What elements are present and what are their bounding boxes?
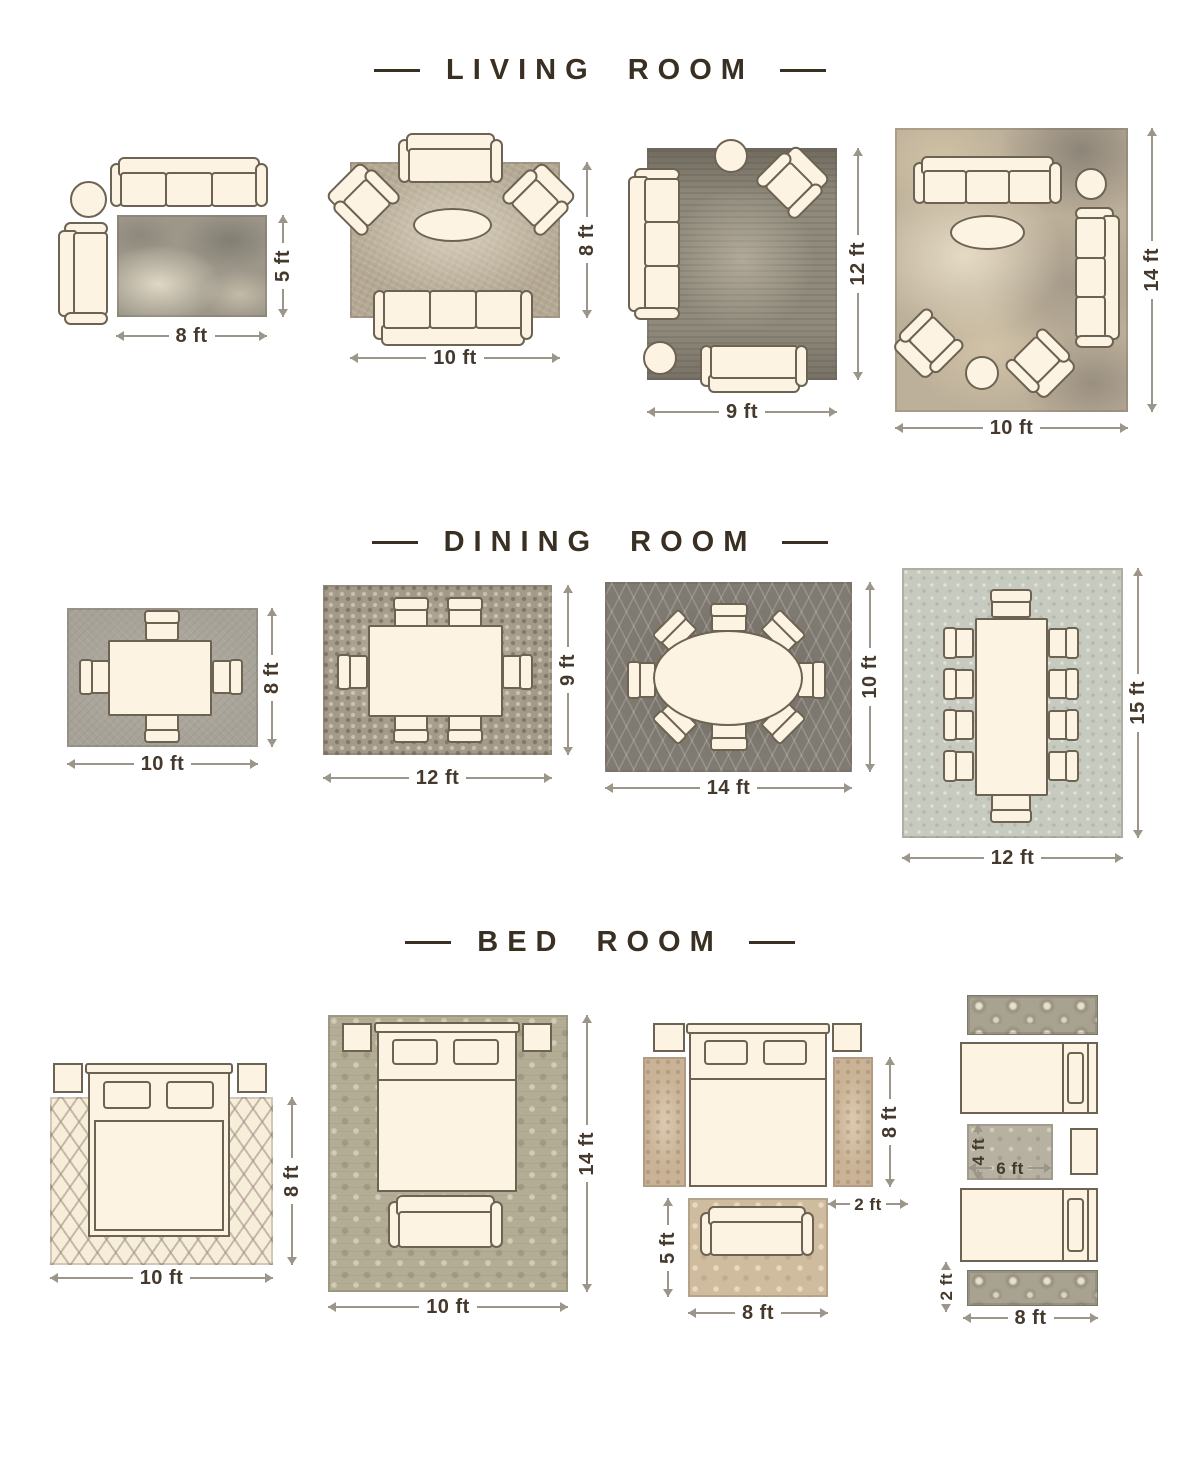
- arm-part: [64, 312, 108, 325]
- pw-part: [704, 1040, 748, 1065]
- ln-part: [857, 293, 859, 380]
- ln-part: [1040, 427, 1128, 429]
- ln-part: [586, 162, 588, 217]
- dining-chair-left-3: [946, 710, 974, 740]
- ln-part: [667, 1271, 669, 1298]
- ln-part: [1137, 732, 1139, 838]
- ln-part: [191, 763, 258, 765]
- div-part: [1062, 1042, 1064, 1114]
- title-dash-right: [749, 941, 795, 944]
- ln-part: [50, 1277, 133, 1279]
- height-dimension: 8 ft: [278, 1097, 306, 1265]
- pw-part: [392, 1039, 438, 1065]
- txt-part: 10 ft: [134, 754, 192, 774]
- ln-part: [963, 1317, 1008, 1319]
- blk-part: [94, 1120, 224, 1231]
- ln-part: [291, 1204, 293, 1265]
- ln-part: [567, 585, 569, 647]
- ln-part: [1151, 299, 1153, 412]
- dining-chair-top-2: [448, 600, 482, 628]
- nightstand-right: [832, 1023, 862, 1052]
- arm-part: [520, 290, 533, 340]
- txt-part: 10 ft: [860, 648, 880, 706]
- width-dimension: 12 ft: [902, 846, 1123, 870]
- seats-part: [120, 172, 258, 207]
- txt-part: 14 ft: [700, 778, 758, 798]
- width-dimension: 10 ft: [350, 346, 560, 370]
- section-title-dining-room: DINING ROOM: [0, 528, 1200, 557]
- width-dimension: 10 ft: [895, 416, 1128, 440]
- seats-part: [408, 148, 493, 183]
- seats-part: [1075, 217, 1107, 338]
- loveseat-bottom: [700, 345, 808, 393]
- txt-part: 8 ft: [735, 1303, 781, 1323]
- sofa-3seat-right: [1075, 207, 1120, 348]
- txt-part: 10 ft: [419, 1297, 477, 1317]
- width-dimension: 10 ft: [67, 752, 258, 776]
- dining-chair-right: [212, 660, 240, 694]
- arm-part: [255, 163, 268, 207]
- txt-part: 5 ft: [658, 1225, 678, 1271]
- width-dimension: 10 ft: [328, 1295, 568, 1319]
- seats-part: [73, 232, 108, 315]
- height-dimension: 14 ft: [1138, 128, 1166, 412]
- loveseat-vertical: [58, 222, 108, 325]
- round-side-table-bottom: [643, 341, 677, 375]
- height-dimension: 8 ft: [258, 608, 286, 747]
- txt-part: 15 ft: [1128, 674, 1148, 732]
- ln-part: [271, 608, 273, 655]
- oval-dining-table: [653, 630, 803, 726]
- pw-part: [103, 1081, 151, 1109]
- ln-part: [765, 411, 837, 413]
- round-side-table: [70, 181, 107, 218]
- txt-part: 12 ft: [409, 768, 467, 788]
- seats-part: [398, 1211, 493, 1248]
- ln-part: [1151, 128, 1153, 241]
- title-dash-left: [405, 941, 451, 944]
- dining-chair-top-1: [394, 600, 428, 628]
- width-dimension: 10 ft: [50, 1266, 273, 1290]
- txt-part: 14 ft: [1142, 241, 1162, 299]
- pw-part: [1067, 1052, 1084, 1104]
- runner-width-dimension: 2 ft: [932, 1262, 960, 1312]
- height-dimension: 10 ft: [856, 582, 884, 772]
- seats-part: [710, 1221, 804, 1256]
- hb-part: [85, 1063, 233, 1074]
- height-dimension: 14 ft: [573, 1015, 601, 1292]
- ln-part: [869, 582, 871, 648]
- seats-part: [644, 178, 680, 310]
- ln-part: [1137, 568, 1139, 674]
- height-dimension: 15 ft: [1124, 568, 1152, 838]
- nightstand-right: [522, 1023, 552, 1052]
- ln-part: [1054, 1317, 1099, 1319]
- dining-chair-left: [340, 655, 368, 689]
- round-side-table-top: [714, 139, 748, 173]
- txt-part: 2 ft: [938, 1269, 955, 1305]
- width-dimension: 12 ft: [323, 766, 552, 790]
- txt-part: 8 ft: [169, 326, 215, 346]
- ln-part: [328, 1306, 419, 1308]
- sofa-3seat-bottom: [373, 290, 533, 346]
- width-dimension: 14 ft: [605, 776, 852, 800]
- arm-part: [801, 1212, 814, 1256]
- oval-coffee-table: [950, 215, 1025, 250]
- ln-part: [886, 1203, 908, 1205]
- ln-part: [977, 1124, 979, 1134]
- div-part: [1062, 1188, 1064, 1262]
- ln-part: [828, 1203, 850, 1205]
- dining-chair-left-4: [946, 751, 974, 781]
- section-title-text: DINING ROOM: [444, 528, 757, 557]
- ln-part: [282, 289, 284, 317]
- queen-bed: [689, 1023, 827, 1187]
- sofa-3seat-vertical: [628, 168, 680, 320]
- dining-table: [108, 640, 212, 716]
- dining-chair-right-2: [1048, 669, 1076, 699]
- queen-bed: [88, 1063, 230, 1237]
- ln-part: [586, 1182, 588, 1292]
- ln-part: [282, 215, 284, 243]
- arm-part: [634, 307, 680, 320]
- ln-part: [350, 357, 426, 359]
- ln-part: [895, 427, 983, 429]
- dining-chair-top: [991, 592, 1031, 618]
- ln-part: [323, 777, 409, 779]
- ln-part: [647, 411, 719, 413]
- txt-part: 9 ft: [719, 402, 765, 422]
- between-rug-width-dimension: 6 ft: [968, 1156, 1052, 1180]
- title-dash-right: [782, 541, 828, 544]
- txt-part: 8 ft: [880, 1099, 900, 1145]
- twin-bed-top: [960, 1042, 1098, 1114]
- dining-chair-right-1: [1048, 628, 1076, 658]
- rug-8x5: [117, 215, 267, 317]
- loveseat: [700, 1206, 814, 1256]
- height-dimension: 9 ft: [554, 585, 582, 755]
- runner-width-dimension: 2 ft: [828, 1192, 908, 1216]
- nightstand-right: [237, 1063, 267, 1093]
- ln-part: [889, 1145, 891, 1187]
- ln-part: [902, 857, 984, 859]
- ln-part: [968, 1167, 992, 1169]
- ln-part: [586, 263, 588, 318]
- ln-part: [945, 1305, 947, 1312]
- section-title-bed-room: BED ROOM: [0, 928, 1200, 957]
- width-dimension: 8 ft: [116, 324, 267, 348]
- ln-part: [1028, 1167, 1052, 1169]
- section-title-text: LIVING ROOM: [446, 56, 754, 85]
- runner-bottom: [967, 1270, 1098, 1306]
- ln-part: [215, 335, 268, 337]
- dining-chair-right-3: [1048, 710, 1076, 740]
- arm-part: [1075, 335, 1114, 348]
- ln-part: [605, 787, 700, 789]
- ln-part: [667, 1198, 669, 1225]
- ln-part: [466, 777, 552, 779]
- txt-part: 2 ft: [850, 1196, 886, 1213]
- txt-part: 8 ft: [282, 1158, 302, 1204]
- sofa-3seat: [110, 157, 268, 207]
- twin-bed-bottom: [960, 1188, 1098, 1262]
- runner-length-dimension: 8 ft: [876, 1057, 904, 1187]
- fold-part: [689, 1078, 827, 1080]
- pw-part: [1067, 1198, 1084, 1251]
- txt-part: 12 ft: [848, 235, 868, 293]
- dining-table: [975, 618, 1048, 796]
- ln-part: [688, 1312, 735, 1314]
- height-dimension: 12 ft: [844, 148, 872, 380]
- txt-part: 9 ft: [558, 647, 578, 693]
- bench: [388, 1195, 503, 1248]
- dining-table: [368, 625, 503, 717]
- hb-part: [374, 1022, 520, 1033]
- nightstand-left: [653, 1023, 685, 1052]
- ln-part: [1041, 857, 1123, 859]
- runner-left: [643, 1057, 686, 1187]
- ln-part: [477, 1306, 568, 1308]
- ln-part: [889, 1057, 891, 1099]
- txt-part: 14 ft: [577, 1125, 597, 1183]
- arm-part: [1049, 162, 1062, 204]
- ln-part: [869, 706, 871, 772]
- height-dimension: 5 ft: [269, 215, 297, 317]
- pw-part: [453, 1039, 499, 1065]
- hbr-part: [1087, 1042, 1098, 1114]
- arm-part: [490, 139, 503, 183]
- txt-part: 12 ft: [984, 848, 1042, 868]
- seats-part: [923, 170, 1052, 204]
- foot-rug-width-dimension: 8 ft: [688, 1301, 828, 1325]
- foot-rug-height-dimension: 5 ft: [654, 1198, 682, 1297]
- txt-part: 10 ft: [983, 418, 1041, 438]
- title-dash-left: [372, 541, 418, 544]
- dining-chair-top: [145, 613, 179, 641]
- runner-top: [967, 995, 1098, 1035]
- section-title-living-room: LIVING ROOM: [0, 56, 1200, 85]
- fold-part: [377, 1079, 517, 1081]
- ln-part: [190, 1277, 273, 1279]
- dining-chair-bottom: [991, 794, 1031, 820]
- hb-part: [686, 1023, 830, 1034]
- ln-part: [757, 787, 852, 789]
- ln-part: [484, 357, 560, 359]
- round-side-table-top: [1075, 168, 1107, 200]
- ln-part: [857, 148, 859, 235]
- title-dash-left: [374, 69, 420, 72]
- txt-part: 6 ft: [992, 1160, 1028, 1177]
- title-dash-right: [780, 69, 826, 72]
- ln-part: [291, 1097, 293, 1158]
- nightstand-left: [342, 1023, 372, 1052]
- ln-part: [781, 1312, 828, 1314]
- txt-part: 8 ft: [1008, 1308, 1054, 1328]
- height-dimension: 8 ft: [573, 162, 601, 318]
- dining-chair-left: [82, 660, 110, 694]
- seats-part: [383, 290, 523, 329]
- dining-chair-left-1: [946, 628, 974, 658]
- dining-chair-right: [502, 655, 530, 689]
- ln-part: [67, 763, 134, 765]
- txt-part: 10 ft: [133, 1268, 191, 1288]
- txt-part: 5 ft: [273, 243, 293, 289]
- width-dimension: 9 ft: [647, 400, 837, 424]
- arm-part: [795, 345, 808, 387]
- seats-part: [710, 345, 798, 379]
- txt-part: 8 ft: [577, 217, 597, 263]
- dining-chair-left-2: [946, 669, 974, 699]
- nightstand: [1070, 1128, 1098, 1175]
- pw-part: [166, 1081, 214, 1109]
- loveseat-top: [398, 133, 503, 183]
- txt-part: 10 ft: [426, 348, 484, 368]
- ln-part: [271, 701, 273, 748]
- oval-coffee-table: [413, 208, 492, 242]
- nightstand-left: [53, 1063, 83, 1093]
- queen-bed: [377, 1022, 517, 1192]
- txt-part: 8 ft: [262, 655, 282, 701]
- section-title-text: BED ROOM: [477, 928, 723, 957]
- hbr-part: [1087, 1188, 1098, 1262]
- pw-part: [763, 1040, 807, 1065]
- runner-length-dimension: 8 ft: [963, 1306, 1098, 1330]
- ln-part: [116, 335, 169, 337]
- dining-chair-right-4: [1048, 751, 1076, 781]
- dining-chair-top: [711, 606, 747, 632]
- ln-part: [586, 1015, 588, 1125]
- ln-part: [567, 693, 569, 755]
- sofa-3seat-top: [913, 156, 1062, 204]
- dining-chair-bottom: [145, 712, 179, 740]
- arm-part: [490, 1201, 503, 1248]
- round-side-table-bottom: [965, 356, 999, 390]
- rug-size-guide: LIVING ROOM 5 ft 8 ft: [0, 0, 1200, 1467]
- runner-right: [833, 1057, 873, 1187]
